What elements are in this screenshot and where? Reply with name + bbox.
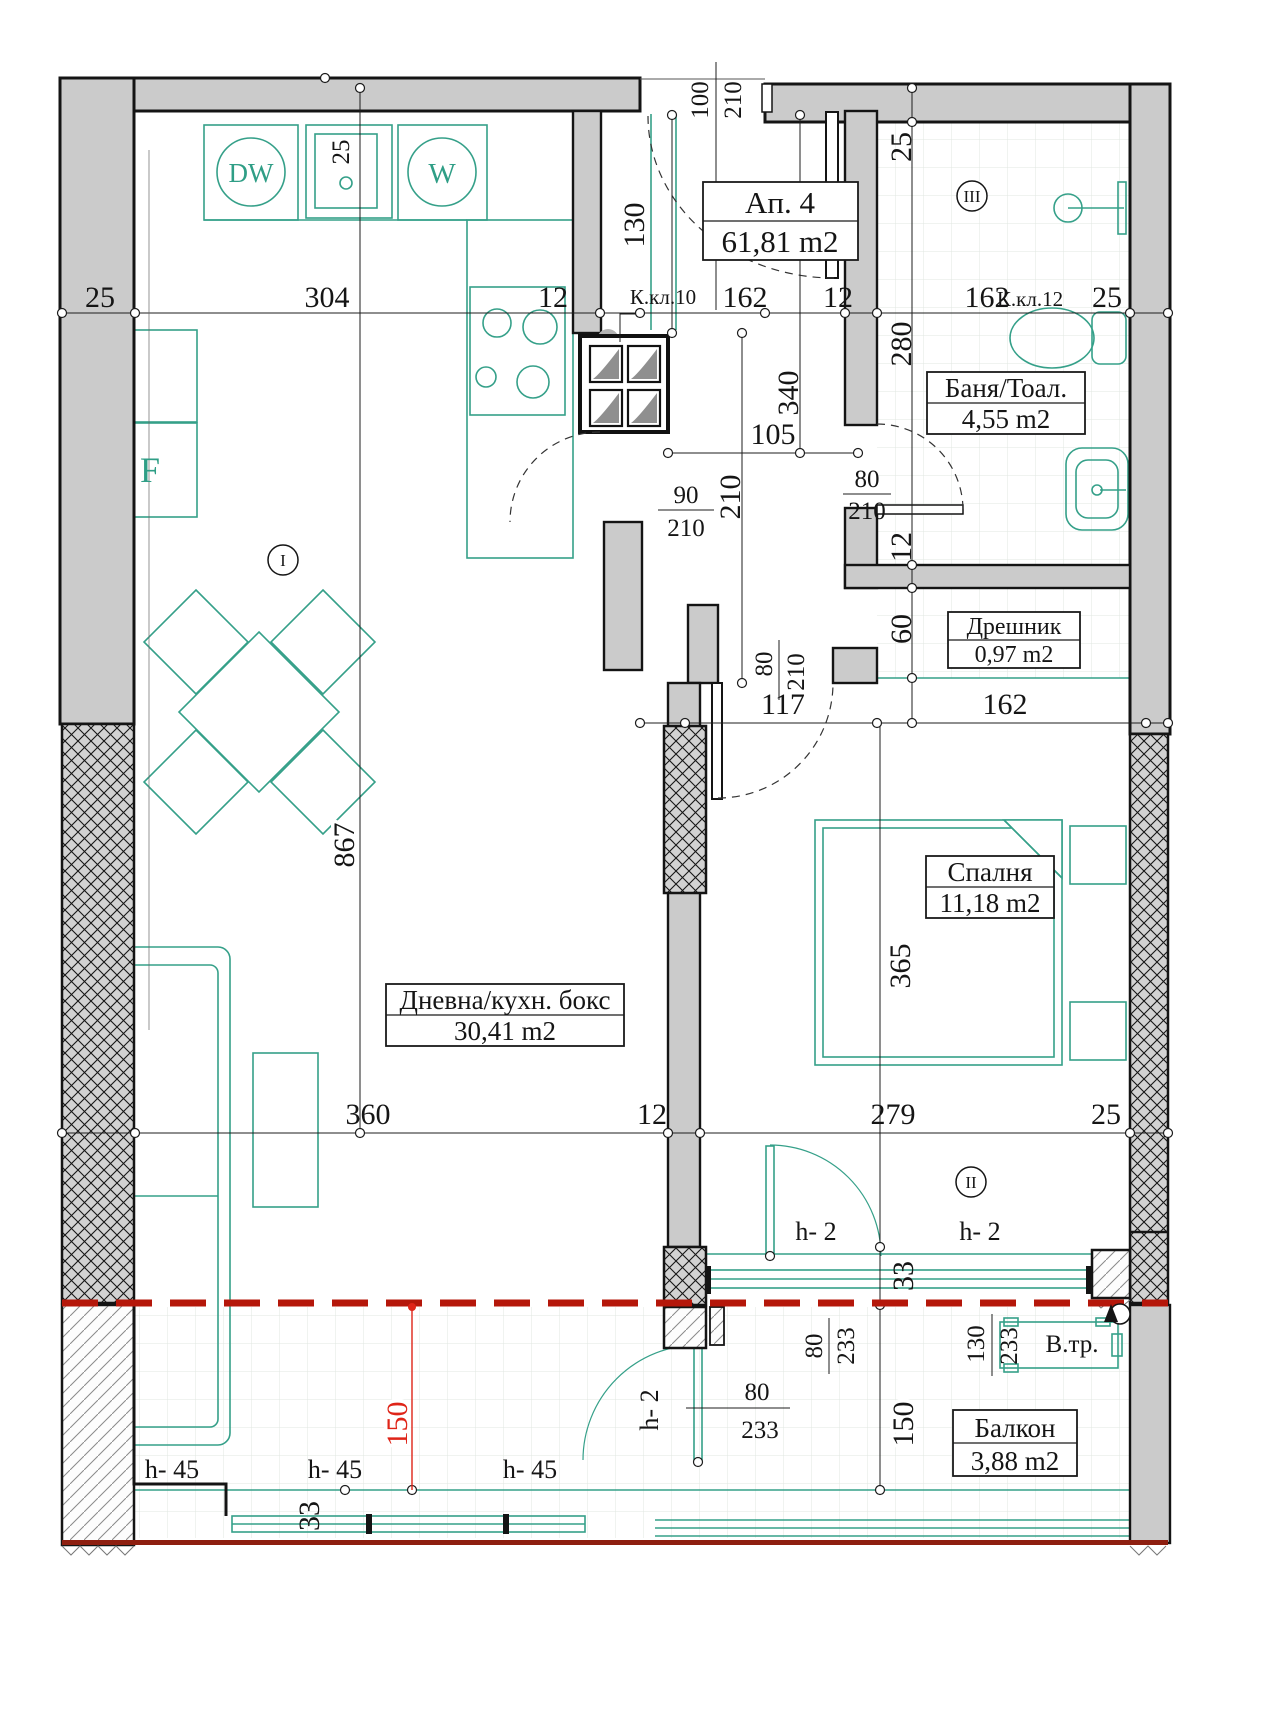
shaft-column [664,726,706,893]
shaft-k10-label: К.кл.10 [630,285,696,309]
window-jamb-tick [706,1266,711,1294]
nightstand [1070,826,1126,884]
dim-sink: 25 [328,140,355,165]
chair-icon [271,590,375,694]
dim-liv-balc-door-w: 80 [745,1379,770,1406]
wall-bedroom-door-jamb [688,605,718,683]
wall-balcony-right [1130,1305,1170,1543]
living-area: 30,41 m2 [454,1016,556,1046]
bedroom-door-leaf [712,683,722,799]
window-mullion-tick [503,1514,509,1534]
dim-hall-length: 340 [772,371,805,416]
parapet-high-label: h- 45 [308,1455,362,1484]
closet-name: Дрешник [967,614,1062,640]
dim-balcony-depth-red: 150 [381,1402,414,1447]
balcony-wall-left [62,1305,134,1545]
entry-door-frame [762,84,772,112]
dim-bath-door-h: 210 [848,498,886,525]
dim-top-jamb2: 12 [823,281,853,314]
parapet-high-label: h- 45 [145,1455,199,1484]
dim-bottom-living: 360 [346,1098,391,1131]
bath-area: 4,55 m2 [962,404,1051,434]
dim-right-bath: 280 [885,322,918,367]
apartment-area: 61,81 m2 [721,224,838,259]
bedroom-window-jamb [1092,1250,1130,1298]
marker-living: I [268,545,298,575]
dim-bottom-wall-right: 25 [1091,1098,1121,1131]
sink-box [306,125,392,218]
dim-right-closet: 60 [885,614,918,644]
floor-plan-canvas: 25 304 12 К.кл.10 162 12 162 К.кл.12 25 … [0,0,1265,1717]
dim-sill-height: 33 [887,1261,920,1291]
wall-kitchen-hall [573,111,601,333]
wall-top-left [60,78,640,111]
dim-liv-balc-door-h: 233 [741,1417,779,1444]
bedroom-label-box: Спалня 11,18 m2 [926,856,1054,918]
kitchen-counter [104,125,573,558]
marker-balcony: II [956,1167,986,1197]
balcony-name: Балкон [975,1413,1056,1443]
dim-bedroom-door-h: 210 [783,653,810,691]
balcony-edge-line [62,1540,1168,1545]
bedroom-area: 11,18 m2 [940,888,1041,918]
window-mullion-tick [366,1514,372,1534]
dim-balcony-depth: 150 [887,1402,920,1447]
marker-bath-text: III [964,187,981,206]
dim-right-jamb: 12 [885,532,918,562]
sink-drain-icon [340,177,352,189]
closet-area: 0,97 m2 [975,642,1054,668]
nightstand [1070,1002,1126,1060]
dim-bedroom-door-w: 80 [751,652,778,677]
dim-bed-balc-door-w: 80 [801,1334,828,1359]
duct-shaft-k10 [580,329,668,432]
window-jamb-tick [1086,1266,1091,1294]
parapet-high-label: h- 45 [503,1455,557,1484]
dim-bottom-wall: 12 [637,1098,667,1131]
dim-entry-door-h: 210 [720,81,747,119]
balcony-divider-wall [664,1307,706,1348]
vent-pipe-label: В.тр. [1046,1331,1099,1358]
dim-kitchen-door-w: 90 [674,482,699,509]
wall-bath-left [845,111,877,425]
dim-top-hall: 162 [723,281,768,314]
bath-label-box: Баня/Тоал. 4,55 m2 [927,372,1085,434]
dim-hall-width: 105 [751,418,796,451]
dim-living-length: 867 [328,823,361,868]
dim-hall-length2: 210 [714,475,747,520]
dim-hall-front: 130 [618,203,651,248]
wall-bath-bottom [845,565,1130,588]
marker-living-text: I [280,551,286,570]
dim-bottom-bedroom: 279 [871,1098,916,1131]
window-wall-right [1130,734,1168,1303]
dim-kitchen-door-h: 210 [667,515,705,542]
dim-bed-window-w: 130 [963,1325,990,1363]
washer-label: W [428,158,456,190]
dim-bath-door-w: 80 [855,466,880,493]
dim-bed-balc-door-h: 233 [833,1327,860,1365]
marker-bath: III [957,181,987,211]
room-label-boxes: Ап. 4 61,81 m2 Баня/Тоал. 4,55 m2 Дрешни… [386,182,1085,1476]
dim-sill-height: 33 [293,1501,326,1531]
dim-entry-door-w: 100 [687,81,714,119]
parapet-low-label: h- 2 [635,1389,664,1430]
bath-name: Баня/Тоал. [945,373,1067,403]
living-name: Дневна/кухн. бокс [400,985,611,1015]
balcony-area: 3,88 m2 [971,1446,1060,1476]
apartment-label: Ап. 4 [745,185,815,220]
dim-mid-hall: 117 [761,688,805,721]
parapet-low-label: h- 2 [795,1217,836,1246]
wall-hall-stub [604,522,642,670]
wall-left [60,78,134,724]
closet-label-box: Дрешник 0,97 m2 [948,612,1080,668]
wall-bedroom-door-jamb [833,648,877,683]
window-wall-left [62,724,134,1303]
parapet-low-label: h- 2 [959,1217,1000,1246]
apartment-title-box: Ап. 4 61,81 m2 [703,182,858,260]
dim-mid-closet: 162 [983,688,1028,721]
fridge-label: F [140,450,160,490]
dim-top-jamb: 12 [538,281,568,314]
dining-table-icon [179,632,339,792]
dishwasher-label: DW [229,158,274,188]
shaft-column [664,1247,706,1305]
shaft-k12-label: К.кл.12 [997,287,1063,311]
dim-top-wall-left: 25 [85,281,115,314]
chair-icon [144,730,248,834]
chair-icon [144,590,248,694]
bedroom-name: Спалня [947,857,1032,887]
dim-bedroom-length: 365 [884,944,917,989]
marker-balcony-text: II [965,1173,977,1192]
kitchen-door-swing [510,432,600,522]
dim-right-wall: 25 [885,132,918,162]
bath-door-leaf [877,505,963,514]
chair-icon [271,730,375,834]
dim-top-kitchen: 304 [305,281,350,314]
balcony-label-box: Балкон 3,88 m2 [953,1410,1077,1476]
counter-column [467,220,573,558]
floor-plan-page: 25 304 12 К.кл.10 162 12 162 К.кл.12 25 … [0,0,1265,1717]
wall-right [1130,84,1170,734]
coffee-table [253,1053,318,1207]
balcony-divider-jamb [710,1307,724,1345]
dim-bed-window-h: 233 [996,1327,1023,1365]
dining-set [144,590,375,834]
living-label-box: Дневна/кухн. бокс 30,41 m2 [386,984,624,1046]
dim-top-wall-right: 25 [1092,281,1122,314]
red-dim-node [408,1303,416,1311]
